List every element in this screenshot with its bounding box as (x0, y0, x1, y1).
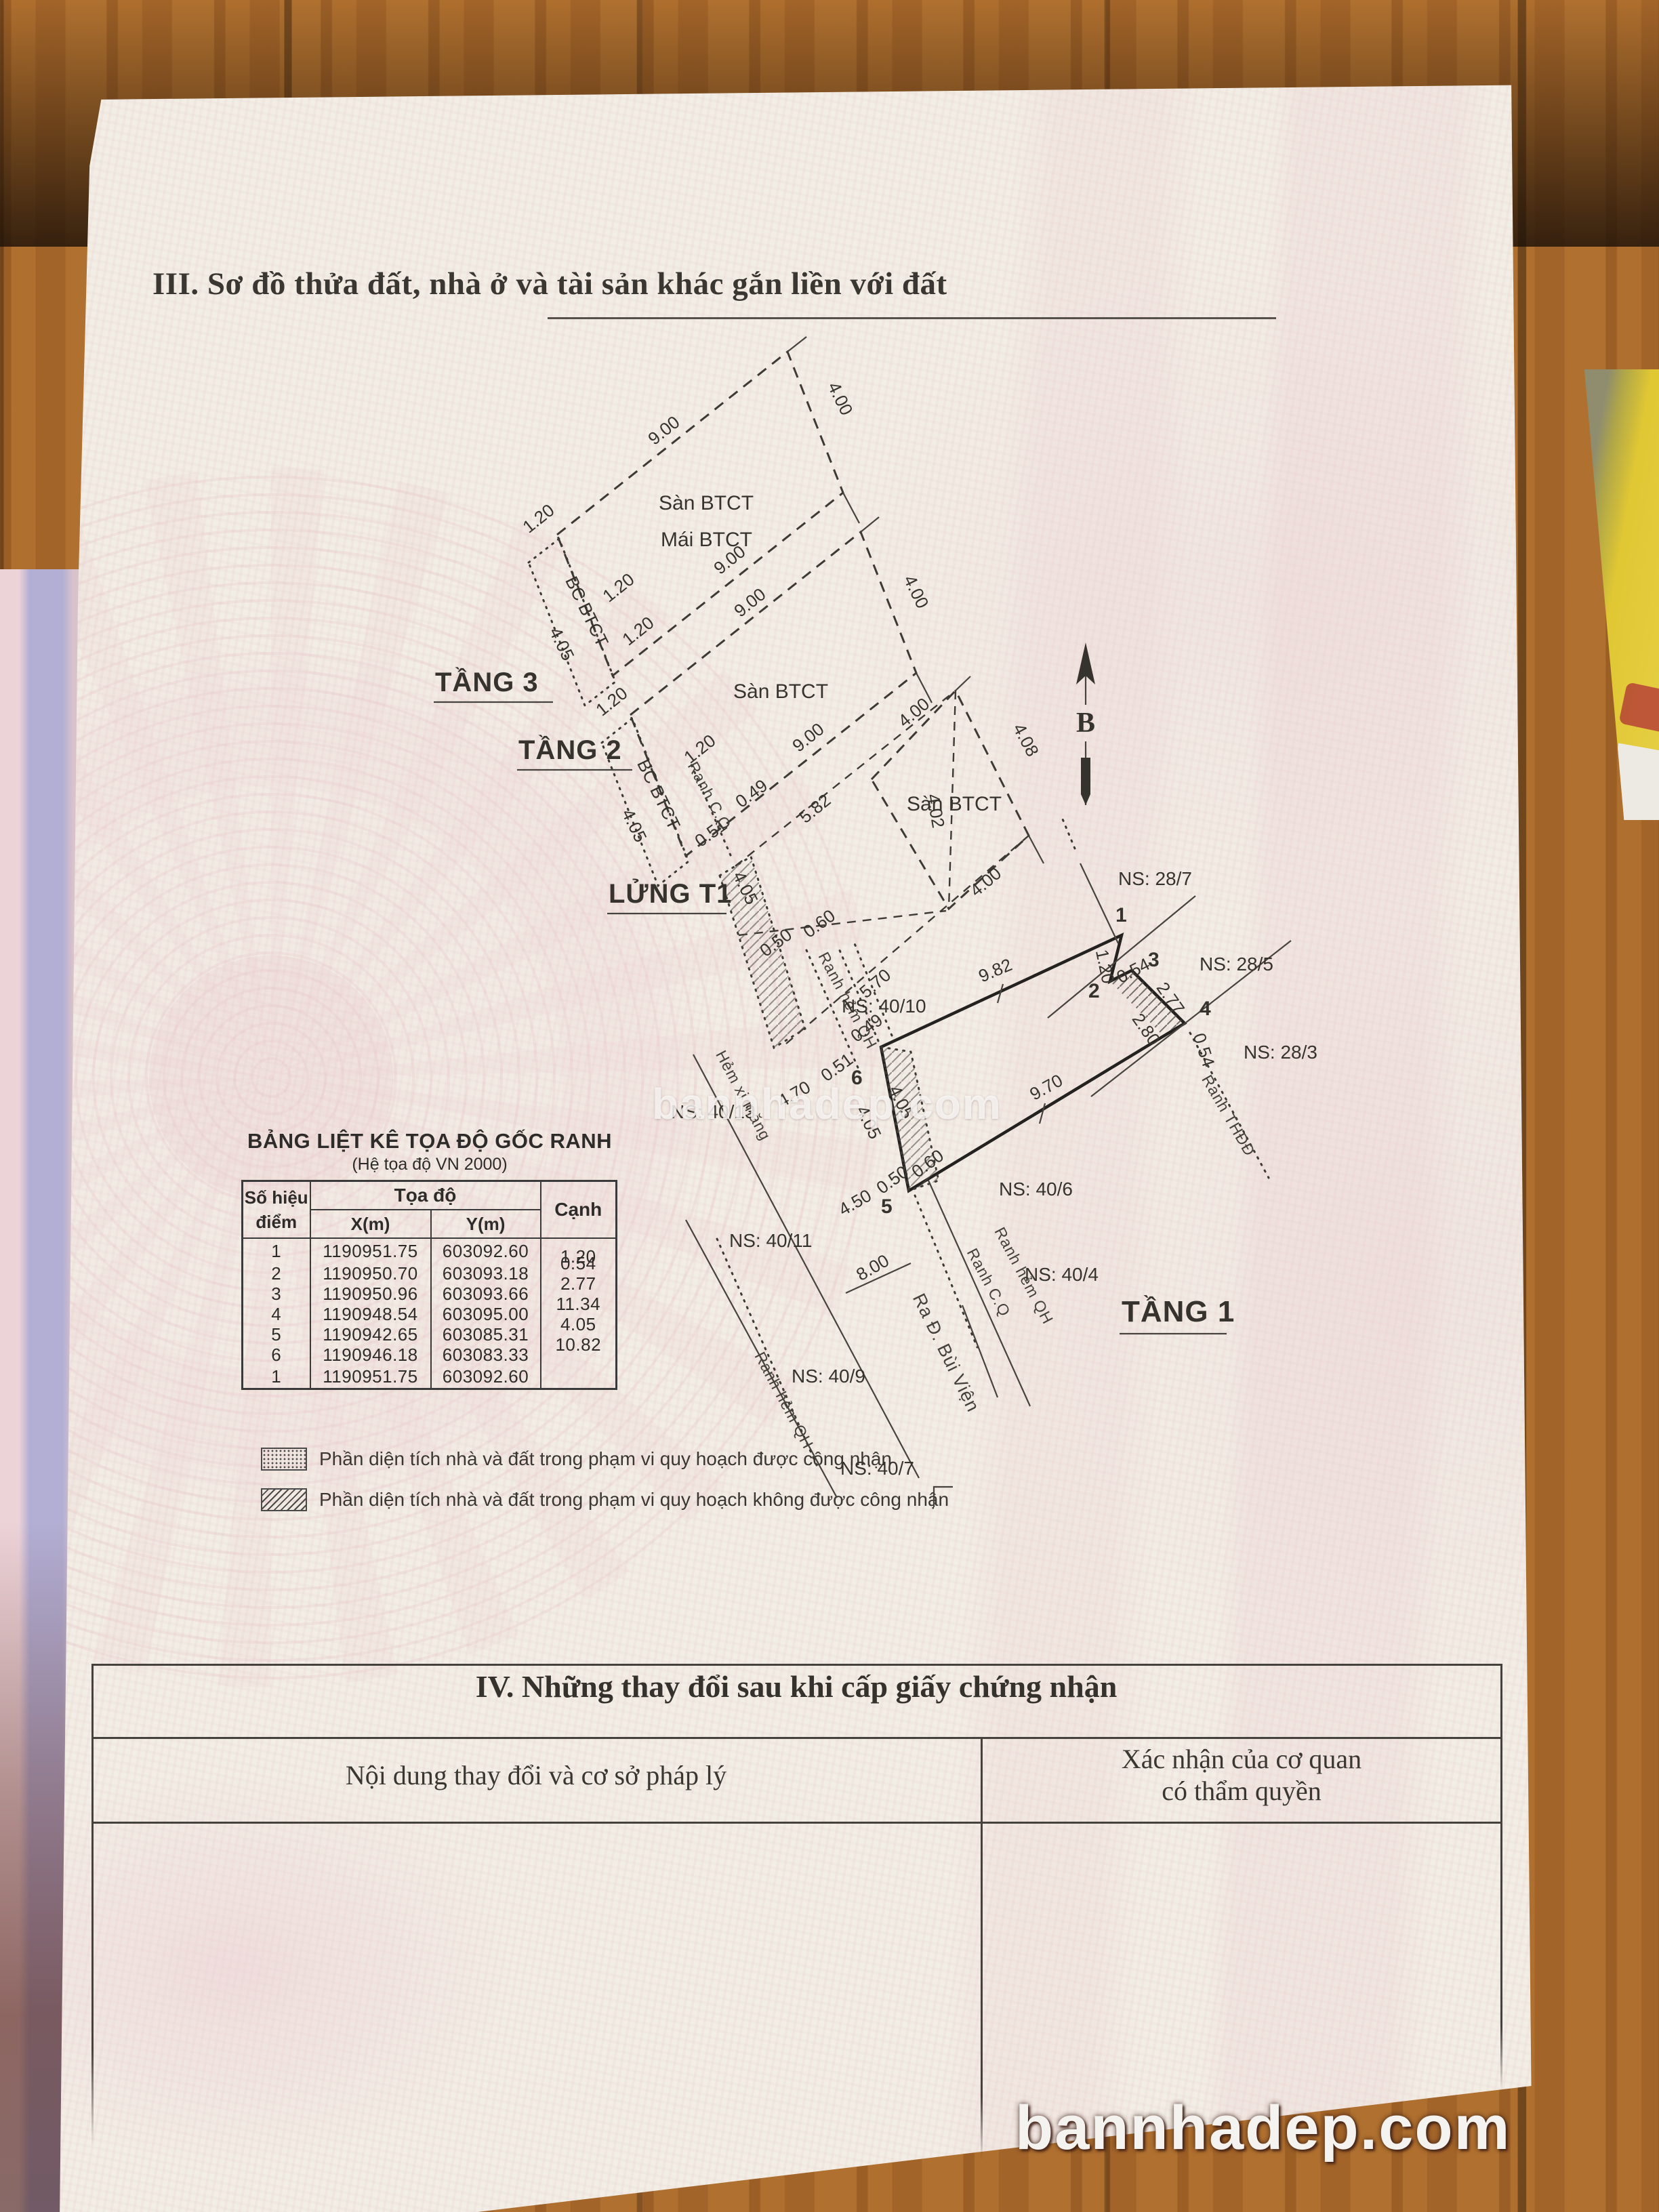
floor-label-lung-t1: LỬNG T1 (609, 878, 732, 909)
floor-label-tang2: TẦNG 2 (518, 734, 622, 765)
t2-san-label: Sàn BTCT (733, 680, 828, 703)
floor-label-tang1: TẦNG 1 (1122, 1294, 1235, 1328)
ns-label: NS: 40/10 (842, 996, 926, 1017)
dim-label: 4.00 (900, 572, 933, 612)
dim-label: 4.00 (824, 379, 857, 419)
point-label: 4 (1200, 998, 1211, 1020)
dim-label: 1.20 (518, 499, 558, 537)
dim-label: 1.20 (598, 569, 638, 606)
dim-label: 4.08 (1009, 720, 1043, 760)
dim-label: 4.50 (835, 1185, 875, 1220)
dim-label: 5.82 (795, 790, 834, 827)
dim-label: 4.00 (894, 693, 933, 731)
dim-label: 4.05 (618, 806, 651, 846)
point-label: 2 (1088, 980, 1100, 1002)
dim-label: 4.00 (966, 863, 1005, 901)
dim-label: 0.54 (1189, 1031, 1218, 1069)
north-letter: B (1076, 708, 1095, 739)
watermark-bottom: bannhadep.com (1015, 2093, 1511, 2164)
ns-label: NS: 40/6 (999, 1179, 1073, 1200)
floor-tang3-plan: Sàn BTCT Mái BTCT 9.00 4.00 1.20 BC BTCT… (434, 337, 859, 705)
ns-label: NS: 28/5 (1200, 954, 1273, 975)
dim-label: 4.05 (546, 624, 579, 664)
ns-label: NS: 40/11 (729, 1230, 812, 1251)
dim-label: 1.20 (592, 682, 631, 720)
point-label: 1 (1115, 904, 1127, 926)
boundary-label: Ranh hẻm QH (751, 1349, 817, 1452)
lt1-san-label: Sàn BTCT (907, 793, 1002, 815)
street-label: Ra Đ. Bùi Viện (909, 1290, 984, 1415)
dim-label: 9.82 (975, 954, 1015, 986)
ns-label: NS: 40/9 (792, 1366, 865, 1387)
floor-label-tang3: TẦNG 3 (435, 666, 539, 697)
dim-label: 0.49 (731, 775, 771, 812)
dim-label: 1.20 (618, 612, 657, 649)
point-label: 5 (881, 1195, 893, 1218)
north-arrow-icon: B (1076, 642, 1095, 805)
point-label: 3 (1148, 949, 1160, 971)
dim-label: 0.60 (799, 905, 839, 942)
dim-label: 9.00 (788, 718, 827, 756)
dim-label: 8.00 (853, 1250, 893, 1285)
boundary-label: Ranh THĐĐ (1198, 1072, 1258, 1160)
ns-label: NS: 28/7 (1118, 868, 1192, 889)
ns-label: NS: 28/3 (1244, 1042, 1317, 1063)
dim-label: 9.00 (730, 583, 769, 621)
dim-label: 9.00 (644, 411, 683, 449)
t3-san-label: Sàn BTCT (659, 492, 754, 514)
ns-label: NS: 40/4 (1025, 1264, 1099, 1285)
ns-label: NS: 40/7 (840, 1458, 914, 1479)
watermark-center: bannhadep.com (652, 1079, 1002, 1129)
